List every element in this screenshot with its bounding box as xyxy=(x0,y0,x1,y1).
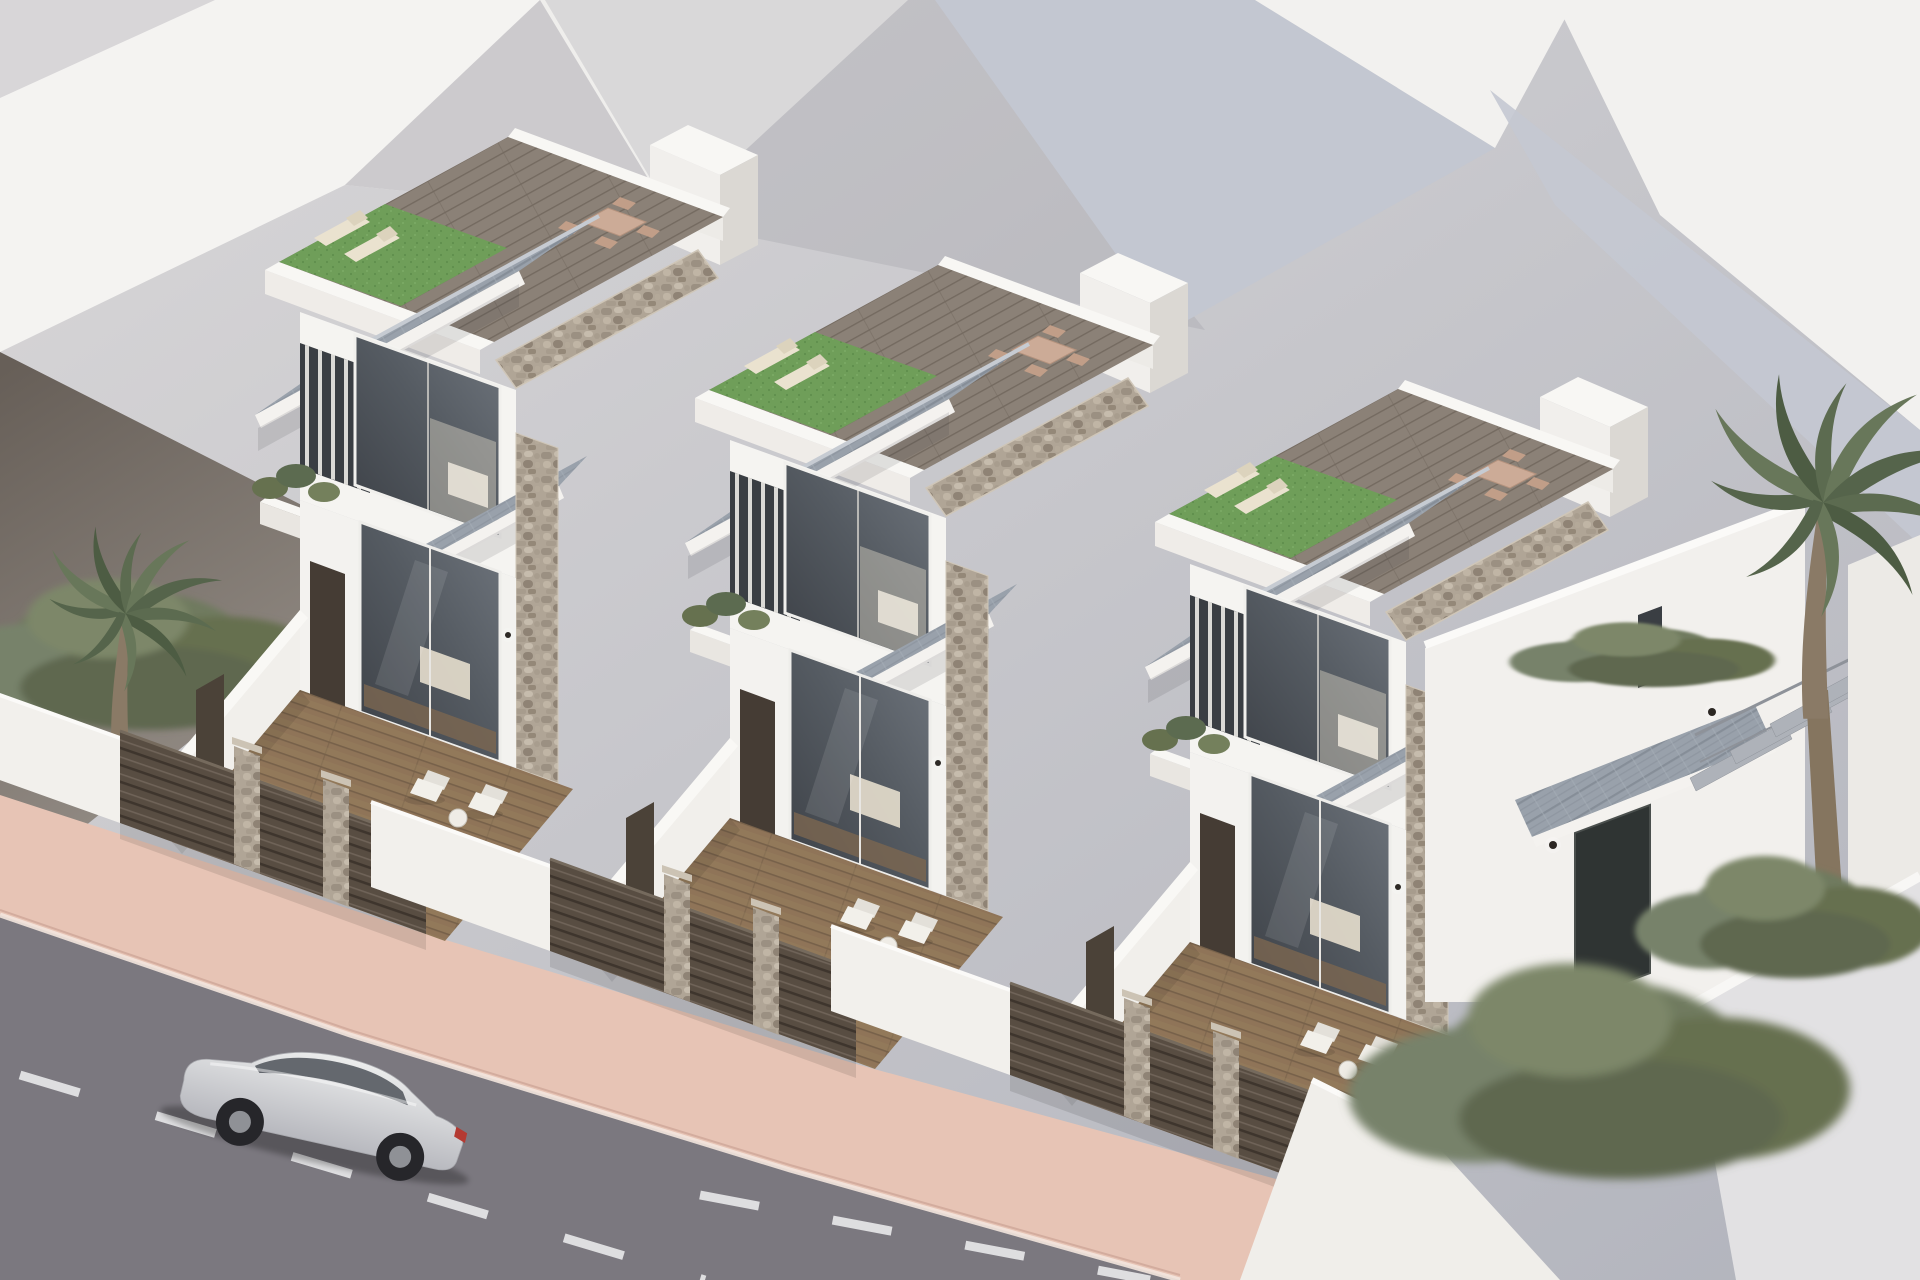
render-canvas xyxy=(0,0,1920,1280)
architectural-render xyxy=(0,0,1920,1280)
